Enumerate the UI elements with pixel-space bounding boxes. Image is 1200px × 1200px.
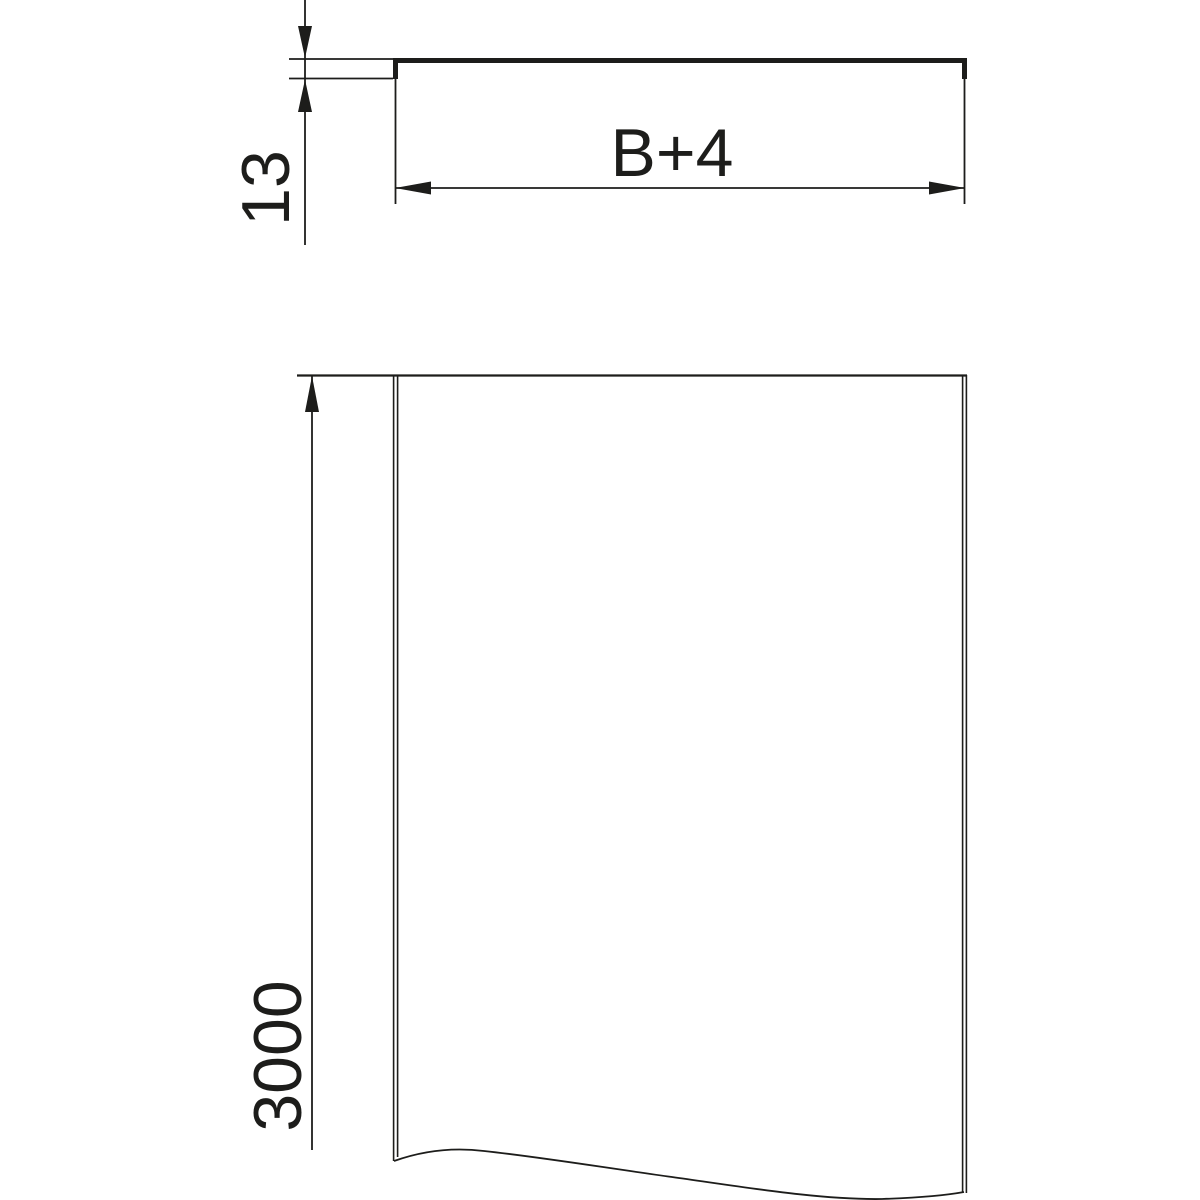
dimension-arrow-left-icon: [395, 182, 431, 195]
drawing-stage: 13 B+4 3000: [0, 0, 1200, 1200]
dimension-arrow-up-icon: [305, 376, 319, 412]
dimension-arrow-up-icon: [298, 80, 312, 113]
plan-view: 3000: [240, 375, 967, 1199]
dimension-drawing: 13 B+4 3000: [0, 0, 1200, 1200]
dimension-arrow-down-icon: [298, 26, 312, 58]
cross-section-view: 13 B+4: [228, 0, 967, 245]
thickness-label: 13: [228, 150, 304, 226]
length-label: 3000: [240, 980, 316, 1131]
width-label: B+4: [611, 115, 734, 191]
break-line: [394, 1149, 964, 1199]
dimension-arrow-right-icon: [929, 182, 965, 195]
cover-profile-section: [393, 58, 967, 79]
